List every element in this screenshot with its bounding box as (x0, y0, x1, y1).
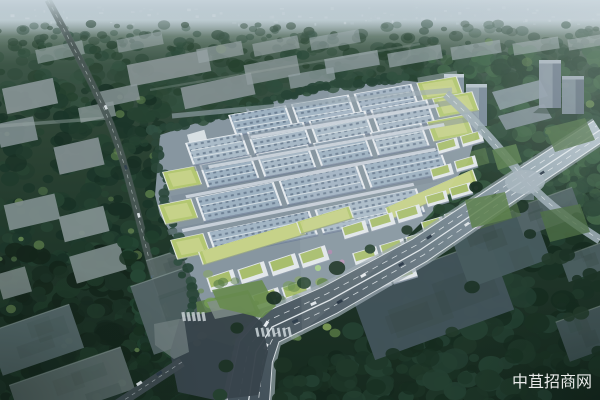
svg-text:中苴招商网: 中苴招商网 (512, 373, 592, 391)
